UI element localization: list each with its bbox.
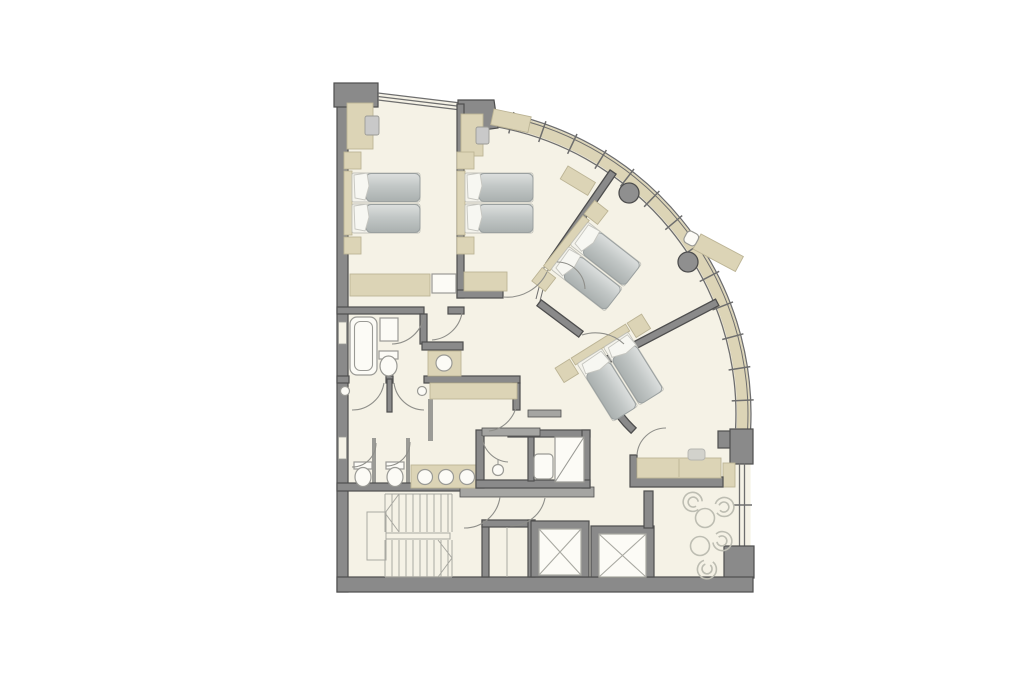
wc-fixture: [534, 454, 553, 479]
wall-basin: [341, 387, 350, 396]
vanity-basin: [460, 470, 475, 485]
column: [678, 252, 698, 272]
vanity-basin: [418, 470, 433, 485]
toilet-bowl: [355, 468, 371, 487]
corridor: [430, 383, 517, 399]
east-pier: [730, 429, 753, 464]
floor-plan-drawing: [0, 0, 1024, 683]
wc-door-stub: [387, 379, 392, 412]
column: [619, 183, 639, 203]
corridor-counter: [430, 383, 517, 399]
wall-basin: [418, 387, 427, 396]
south-wall: [337, 577, 753, 592]
west-wall-niche: [339, 437, 347, 459]
washbasin: [493, 465, 504, 476]
southeast-pier: [724, 546, 754, 578]
corridor-wall-w: [337, 376, 349, 383]
toilet-bowl: [380, 356, 397, 376]
shaft-west-wall: [482, 520, 489, 577]
tv: [476, 127, 489, 144]
elevator-lobby-wall: [644, 491, 653, 528]
tv: [365, 116, 379, 135]
bathroom1-lintel: [422, 342, 463, 350]
counter-stool: [688, 449, 705, 460]
washbasin: [436, 355, 452, 371]
window-sill-unit: [723, 463, 735, 487]
wardrobe: [464, 272, 507, 291]
shelf-unit: [380, 318, 398, 341]
bedroom1-south-wall: [337, 307, 424, 314]
shaft-north-wall: [482, 520, 535, 527]
luggage-rack: [432, 274, 456, 293]
wardrobe: [350, 274, 430, 296]
west-wall-niche: [339, 322, 347, 344]
shower-room-lintel: [482, 428, 540, 436]
hall-beam: [528, 410, 561, 417]
wc-partition: [428, 399, 433, 441]
vanity-basin: [439, 470, 454, 485]
floor-plan-page: [0, 0, 1024, 683]
shower-room-partition: [528, 437, 534, 481]
corridor-wall-e: [424, 376, 520, 383]
toilet-bowl: [387, 468, 403, 487]
